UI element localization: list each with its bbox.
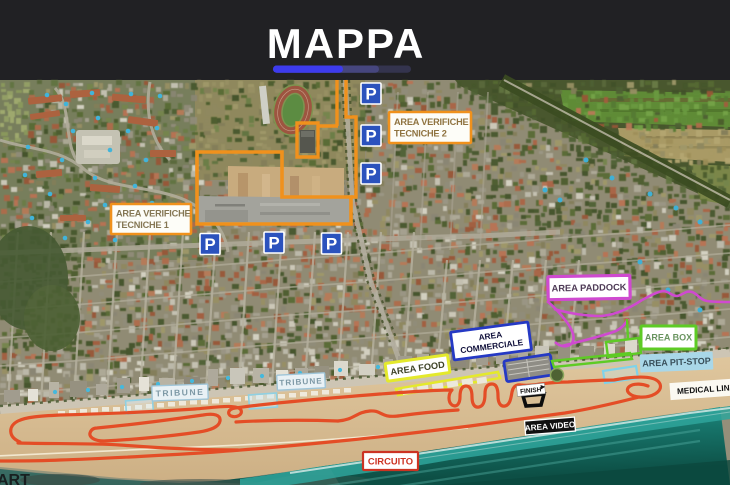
svg-text:P: P xyxy=(268,234,279,253)
svg-text:P: P xyxy=(204,235,215,254)
svg-text:P: P xyxy=(365,127,376,146)
svg-text:TECNICHE 2: TECNICHE 2 xyxy=(394,128,447,138)
svg-text:P: P xyxy=(326,235,337,254)
svg-text:MAPPA: MAPPA xyxy=(267,20,426,67)
svg-text:AREA BOX: AREA BOX xyxy=(645,333,692,343)
svg-text:CIRCUITO: CIRCUITO xyxy=(368,455,413,466)
svg-text:AREA VERIFICHE: AREA VERIFICHE xyxy=(116,209,191,219)
svg-text:ART: ART xyxy=(0,472,30,485)
svg-text:TRIBUNE: TRIBUNE xyxy=(155,387,204,399)
svg-text:TECNICHE 1: TECNICHE 1 xyxy=(116,220,169,230)
svg-text:AREA VERIFICHE: AREA VERIFICHE xyxy=(394,117,469,127)
svg-text:P: P xyxy=(365,85,376,104)
svg-text:AREA PADDOCK: AREA PADDOCK xyxy=(551,282,626,293)
svg-text:P: P xyxy=(365,165,376,184)
